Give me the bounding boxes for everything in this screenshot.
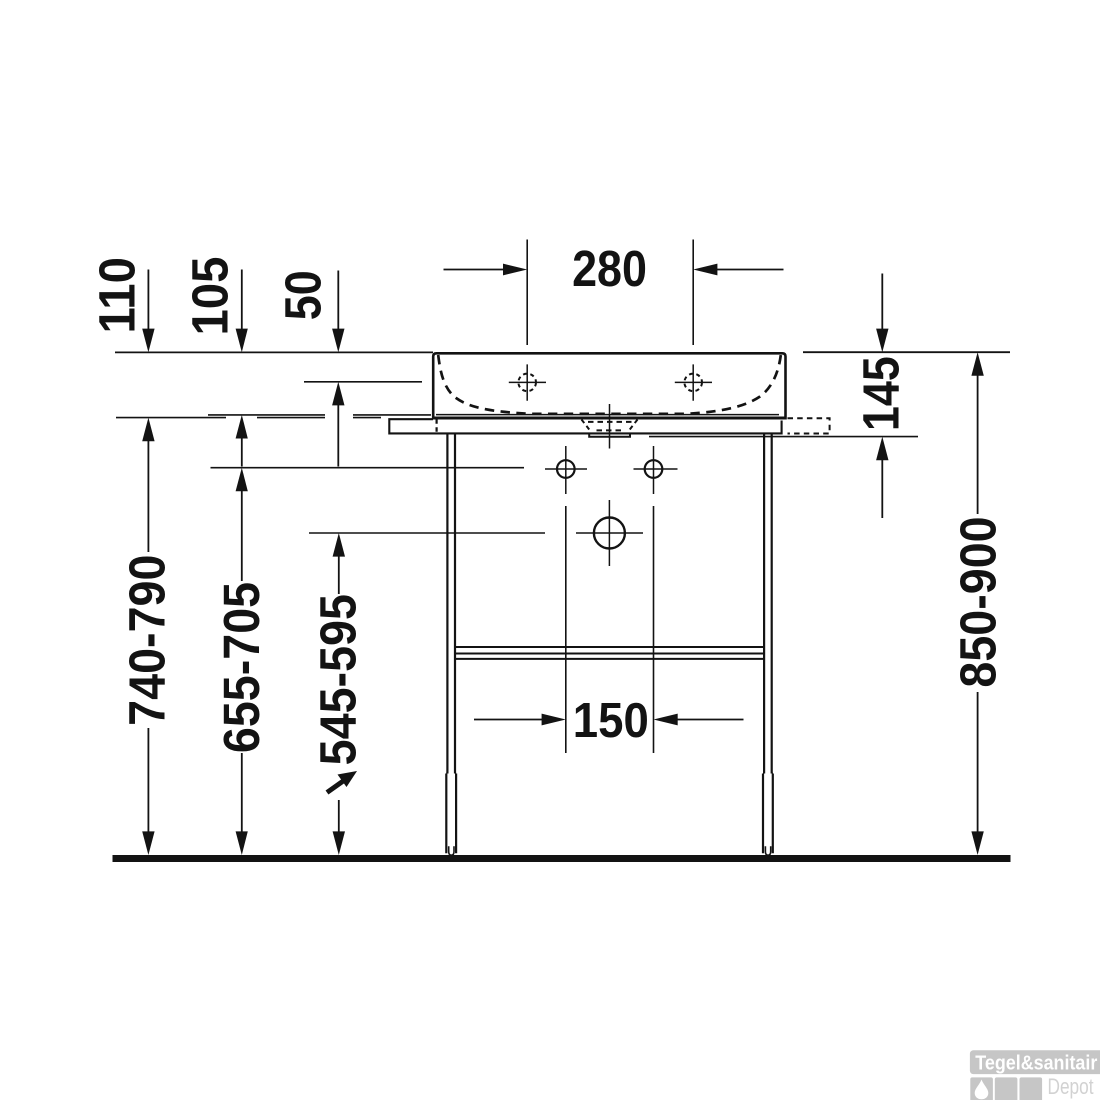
svg-text:145: 145 [854, 356, 910, 431]
svg-text:50: 50 [276, 270, 332, 320]
svg-text:740-790: 740-790 [120, 555, 176, 726]
svg-text:655-705: 655-705 [214, 582, 270, 753]
svg-text:Depot: Depot [1048, 1074, 1094, 1099]
svg-text:150: 150 [573, 694, 649, 749]
svg-text:Tegel&sanitair: Tegel&sanitair [975, 1051, 1097, 1074]
svg-text:545-595: 545-595 [310, 594, 366, 765]
svg-text:105: 105 [182, 256, 239, 335]
svg-text:110: 110 [89, 257, 146, 334]
svg-text:280: 280 [572, 241, 647, 297]
svg-text:850-900: 850-900 [950, 516, 1006, 687]
